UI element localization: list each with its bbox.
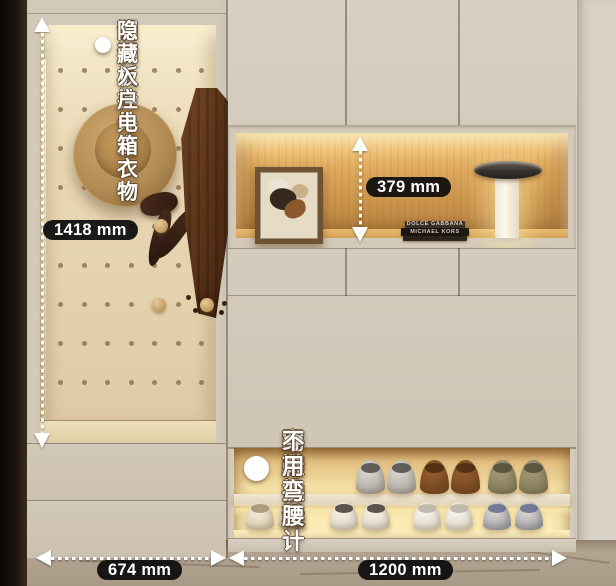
table-lamp-shade: [474, 161, 542, 179]
picture-frame: [255, 167, 323, 244]
book-spine: DOLCE GABBANA: [405, 221, 465, 228]
coat-tassels: [186, 295, 191, 300]
arrow-right-icon: [211, 550, 226, 566]
shoe-opening: [392, 463, 411, 473]
silver-slippers: [387, 460, 416, 494]
pegboard-hole: [58, 302, 63, 307]
arrow-left-icon: [36, 550, 51, 566]
wooden-peg: [154, 219, 168, 233]
table-lamp-base: [491, 238, 523, 242]
arrow-left-icon: [229, 550, 244, 566]
shoe-opening: [335, 504, 353, 512]
shoe-opening: [450, 504, 468, 512]
table-lamp-stem: [495, 176, 519, 240]
note-line: 隐藏入户电箱: [117, 20, 139, 158]
pegboard-hole: [152, 380, 157, 385]
pegboard-hole: [105, 302, 110, 307]
shoe-opening: [367, 504, 385, 512]
pegboard-hole: [199, 341, 204, 346]
pegboard-hole: [199, 68, 204, 73]
dimension-label-left-width: 674 mm: [97, 560, 182, 580]
pegboard-hole: [152, 68, 157, 73]
lower-cabinet-doors: [228, 296, 576, 448]
pegboard-hole: [58, 263, 63, 268]
arrow-down-icon: [34, 433, 50, 448]
patterned-sneakers: [515, 502, 543, 530]
shoe-opening: [456, 463, 475, 473]
left-drawer-lower: [27, 500, 226, 558]
white-sneakers: [413, 502, 441, 530]
arrow-up-icon: [34, 17, 50, 32]
middle-drawer-row: [228, 248, 576, 296]
pegboard-hole: [82, 341, 87, 346]
white-flats: [362, 502, 390, 530]
pegboard-hole: [82, 107, 87, 112]
pegboard-hole: [129, 341, 134, 346]
pegboard-hole: [176, 341, 181, 346]
book-spine: MICHAEL KORS: [401, 228, 469, 236]
plinth-edge: [228, 538, 576, 552]
side-wall: [577, 0, 616, 548]
white-flats: [330, 502, 358, 530]
pegboard-hole: [58, 107, 63, 112]
pegboard-hole: [176, 263, 181, 268]
olive-slippers: [488, 460, 517, 494]
note-bullet-icon: [244, 456, 269, 481]
patterned-sneakers: [483, 502, 511, 530]
arrow-up-icon: [352, 136, 368, 151]
book-spine: [403, 236, 467, 241]
door-seam: [345, 0, 347, 125]
shoe-opening: [488, 504, 506, 512]
cabinet-seam: [27, 13, 226, 14]
pegboard-hole: [105, 380, 110, 385]
right-cabinet-column: DOLCE GABBANA MICHAEL KORS: [228, 0, 576, 552]
annotated-cabinet-photo: DOLCE GABBANA MICHAEL KORS 1418 mm 379 m…: [0, 0, 616, 586]
olive-slippers: [519, 460, 548, 494]
bench-seat: [40, 421, 216, 442]
pegboard-hole: [58, 68, 63, 73]
pegboard-hole: [58, 380, 63, 385]
dimension-label-right-width: 1200 mm: [358, 560, 453, 580]
pegboard-hole: [176, 107, 181, 112]
pegboard-hole: [82, 302, 87, 307]
shoe-opening: [493, 463, 512, 473]
pegboard-hole: [58, 341, 63, 346]
pegboard-hole: [176, 302, 181, 307]
wooden-peg: [152, 298, 166, 312]
pegboard-hole: [82, 263, 87, 268]
pegboard-hole: [152, 341, 157, 346]
dimension-label-cabinet-height: 1418 mm: [43, 220, 138, 240]
door-frame-edge: [0, 0, 27, 586]
pegboard-hole: [82, 380, 87, 385]
pegboard-hole: [199, 380, 204, 385]
dimension-label-niche-height: 379 mm: [366, 177, 451, 197]
wooden-peg: [200, 298, 214, 312]
brown-slippers: [451, 460, 480, 494]
pegboard-hole: [176, 68, 181, 73]
pegboard-hole: [129, 263, 134, 268]
left-drawer-upper: [27, 443, 226, 500]
note-line: 不用弯腰: [282, 429, 306, 529]
door-seam: [458, 0, 460, 125]
pegboard-hole: [105, 68, 110, 73]
shoe-opening: [251, 504, 269, 512]
shoe-opening: [425, 463, 444, 473]
pegboard-hole: [176, 380, 181, 385]
arrow-down-icon: [352, 227, 368, 242]
dimension-line-niche: [359, 151, 362, 227]
pegboard-hole: [58, 146, 63, 151]
silver-slippers: [356, 460, 385, 494]
brown-slippers: [420, 460, 449, 494]
cream-slippers: [246, 502, 274, 530]
pegboard-hole: [176, 185, 181, 190]
pegboard-hole: [58, 185, 63, 190]
pegboard-hole: [105, 263, 110, 268]
shoe-opening: [520, 504, 538, 512]
upper-cabinet-doors: [228, 0, 576, 125]
arrow-right-icon: [552, 550, 567, 566]
pegboard-hole: [129, 302, 134, 307]
white-sneakers: [445, 502, 473, 530]
shoe-opening: [361, 463, 380, 473]
shoe-opening: [524, 463, 543, 473]
pegboard-hole: [105, 341, 110, 346]
pegboard-hole: [129, 380, 134, 385]
note-bullet-icon: [95, 37, 111, 53]
pegboard-hole: [82, 68, 87, 73]
shoe-opening: [418, 504, 436, 512]
